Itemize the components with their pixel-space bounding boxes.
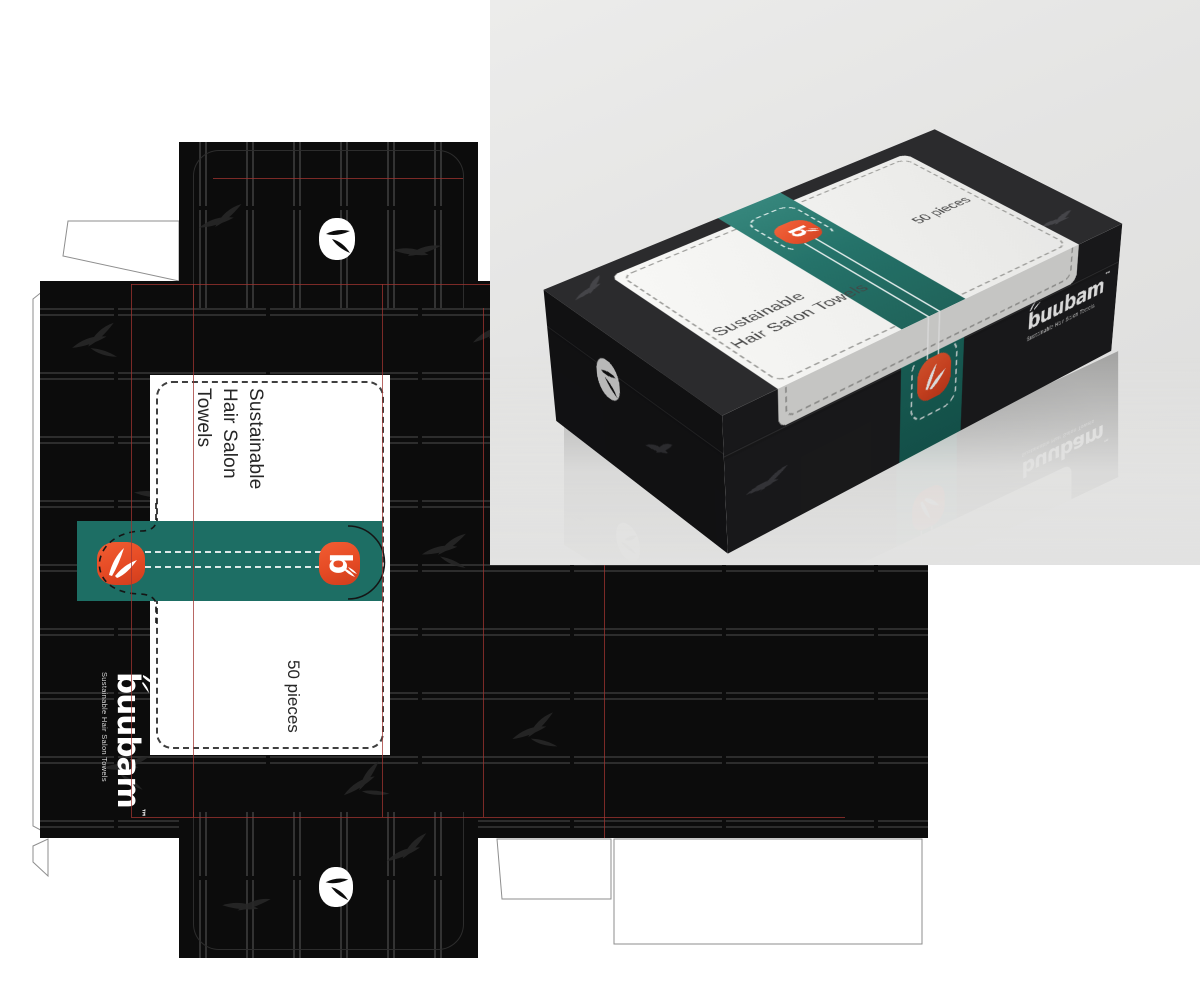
packaging-design-canvas: b Sustainable Hair Salon Towels 50 piece… [0,0,1200,1000]
trademark-symbol: ™ [1105,270,1110,280]
dieline-label-qty: 50 pieces [283,660,303,760]
crease-line [604,565,605,838]
crease-line [193,284,194,817]
dieline-label-title: Sustainable Hair Salon Towels [190,388,268,538]
leaf-logo-icon [319,218,355,260]
crease-line [131,817,845,818]
label-title-line2: Hair Salon Towels [190,388,242,538]
leaf-logo-icon [595,352,621,407]
brand-leaf-accent-icon [142,674,154,694]
crease-line [382,284,383,817]
dieline-bottom-flap [179,812,478,958]
crease-line [131,284,132,817]
leaf-logo-icon [319,867,353,907]
brand-tagline: Sustainable Hair Salon Towels [100,672,109,824]
product-render-area: buubam™ Sustainable Hair Salon Towels b … [490,0,1200,565]
dieline-brand-block: buubam™ Sustainable Hair Salon Towels [100,672,146,824]
crease-line [483,308,484,817]
label-title-line1: Sustainable [242,388,268,538]
crease-line [213,178,463,179]
trademark-symbol: ™ [135,808,146,817]
brand-wordmark: buubam [110,672,146,808]
